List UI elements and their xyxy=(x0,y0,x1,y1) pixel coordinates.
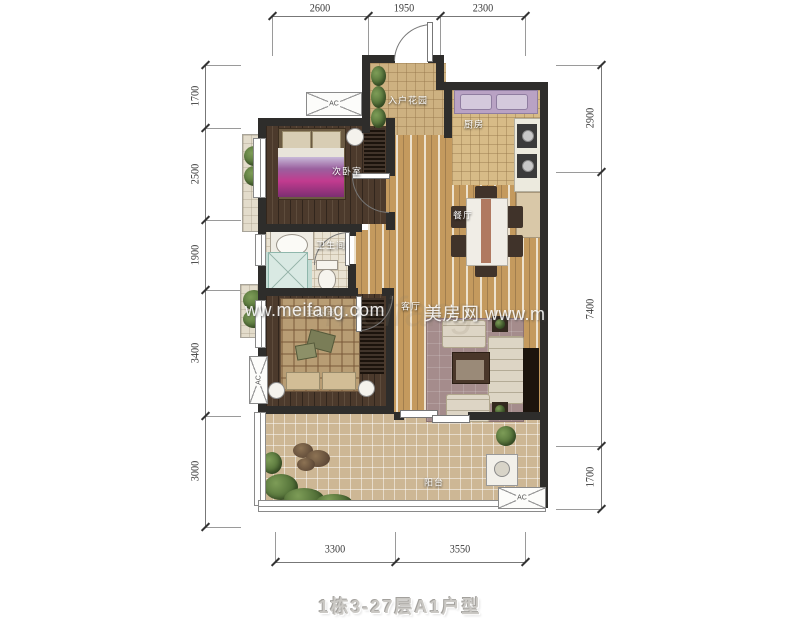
dim-extension xyxy=(525,532,526,562)
room-label-bedroom2: 次卧室 xyxy=(332,165,362,178)
watermark-left: ww.meifang.com xyxy=(245,300,385,321)
dining-chair xyxy=(507,206,523,228)
room-label-entry-garden: 入户花园 xyxy=(388,94,428,107)
wall-segment xyxy=(540,90,548,508)
burner xyxy=(522,160,534,172)
wall-segment xyxy=(362,55,370,133)
dim-bottom-2: 3550 xyxy=(450,542,470,557)
wall-segment xyxy=(386,118,395,176)
dim-line-top xyxy=(272,16,525,17)
dim-extension xyxy=(275,532,276,562)
dim-extension xyxy=(556,65,601,66)
sliding-door-panel xyxy=(432,415,470,423)
dim-left-5: 3000 xyxy=(188,461,203,481)
dim-top-1: 2600 xyxy=(310,1,330,16)
burner xyxy=(522,130,534,142)
bed2-sheet xyxy=(278,148,344,157)
dim-left-3: 1900 xyxy=(188,245,203,265)
floor-plan: 2600 1950 2300 1700 2500 1900 3400 3000 … xyxy=(0,0,800,627)
wardrobe2 xyxy=(364,128,385,176)
washing-machine-door xyxy=(494,461,510,477)
hedge xyxy=(371,66,386,86)
room-label-dining: 餐厅 xyxy=(453,209,473,222)
dim-bottom-1: 3300 xyxy=(325,542,345,557)
dim-extension xyxy=(556,172,601,173)
table-runner xyxy=(481,199,491,263)
ac-platform-label: AC xyxy=(255,374,262,386)
tv-cabinet xyxy=(523,348,539,418)
dim-extension xyxy=(368,16,369,58)
ac-platform: AC xyxy=(498,487,546,509)
dim-top-2: 1950 xyxy=(394,1,414,16)
dim-extension xyxy=(205,290,241,291)
dining-chair xyxy=(451,235,467,257)
master-pillow xyxy=(286,372,320,390)
dim-extension xyxy=(205,527,241,528)
corridor-floor xyxy=(354,230,370,294)
window xyxy=(255,234,266,266)
room-label-bathroom: 卫生间 xyxy=(316,239,346,252)
bed2-pillow xyxy=(282,131,311,149)
wall-segment xyxy=(468,412,540,420)
ac-platform: AC xyxy=(306,92,362,116)
dim-left-2: 2500 xyxy=(188,164,203,184)
dim-tick xyxy=(597,504,606,513)
watermark-right: 美房网 www.m xyxy=(424,300,546,326)
dim-extension xyxy=(556,446,601,447)
dining-chair xyxy=(507,235,523,257)
wall-segment xyxy=(258,406,394,414)
dim-extension xyxy=(395,532,396,562)
shower xyxy=(268,252,308,292)
dim-right-1: 2900 xyxy=(583,108,598,128)
hedge xyxy=(371,108,386,128)
plan-title: 1栋3-27层A1户型 xyxy=(318,593,481,619)
ac-platform: AC xyxy=(249,356,268,404)
dim-top-3: 2300 xyxy=(473,1,493,16)
dim-extension xyxy=(440,16,441,56)
coffee-table-top xyxy=(456,360,484,380)
dim-extension xyxy=(205,416,241,417)
wall-segment xyxy=(362,55,395,63)
wall-segment xyxy=(258,224,362,232)
kitchen-sink xyxy=(496,94,528,110)
dim-left-1: 1700 xyxy=(188,86,203,106)
bedside-table xyxy=(358,380,375,397)
dim-extension xyxy=(205,128,241,129)
hedge xyxy=(371,86,386,108)
dim-extension xyxy=(205,220,241,221)
dim-tick xyxy=(521,557,530,566)
master-pillow xyxy=(322,372,356,390)
ac-platform-label: AC xyxy=(328,101,340,108)
bed2-pillow xyxy=(312,131,341,149)
dim-extension xyxy=(272,16,273,56)
wall-segment xyxy=(442,82,548,90)
wall-segment xyxy=(386,212,395,230)
ac-platform-label: AC xyxy=(516,495,528,502)
dim-left-4: 3400 xyxy=(188,343,203,363)
decor-stones xyxy=(297,458,315,471)
dim-line-left xyxy=(205,65,206,527)
kitchen-sink xyxy=(460,94,492,110)
entry-door-leaf xyxy=(427,22,433,62)
window xyxy=(253,138,266,198)
dim-right-2: 7400 xyxy=(583,299,598,319)
room-label-balcony: 阳台 xyxy=(424,476,444,489)
dim-line-bottom xyxy=(275,562,526,563)
wall-segment xyxy=(444,88,452,138)
dim-extension xyxy=(205,65,241,66)
sofa xyxy=(488,336,524,404)
balcony-tree xyxy=(496,426,516,446)
balcony-rail-left xyxy=(254,412,266,506)
dim-extension xyxy=(525,16,526,56)
bedside-table xyxy=(268,382,285,399)
dim-extension xyxy=(556,509,601,510)
dim-right-3: 1700 xyxy=(583,467,598,487)
room-label-kitchen: 厨房 xyxy=(464,118,484,131)
wall-segment xyxy=(258,118,370,126)
